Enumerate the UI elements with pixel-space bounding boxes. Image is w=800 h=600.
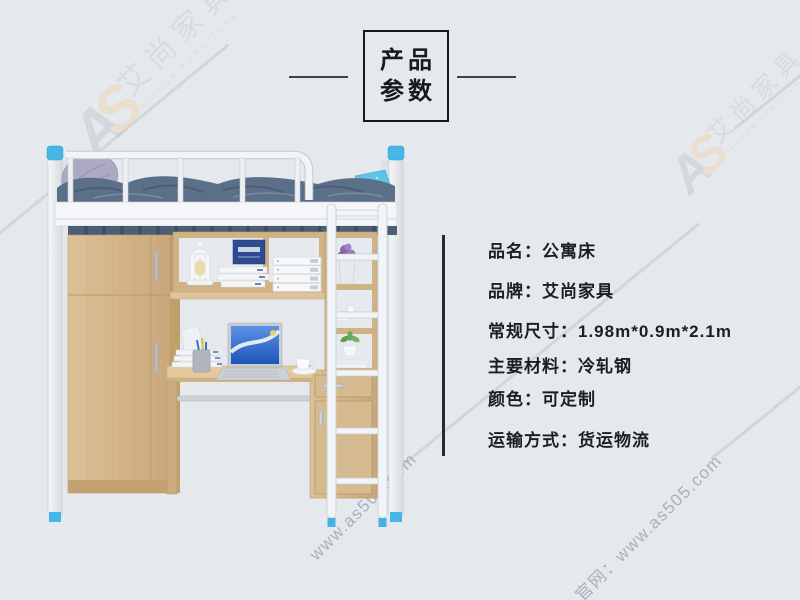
spec-label: 颜色 [488, 390, 524, 409]
spec-value: 可定制 [542, 390, 596, 409]
brand-name-cn: 艾尚家具 [112, 0, 243, 102]
spec-value: 艾尚家具 [542, 282, 614, 301]
spec-label: 品名 [488, 242, 524, 261]
spec-row-color: 颜色：可定制 [488, 385, 596, 410]
spec-colon: ： [560, 322, 578, 341]
spec-label: 运输方式 [488, 431, 560, 450]
promo-canvas: AS 艾尚家具 AIRSUN FURNITURE AS 艾尚家具 AIRSUN … [0, 0, 800, 600]
product-image [33, 140, 418, 550]
brand-name-cn: 艾尚家具 [703, 42, 800, 149]
spec-colon: ： [560, 357, 578, 376]
spec-divider [442, 235, 445, 456]
watermark-slash-bottom-right [710, 383, 800, 460]
spec-row-brand: 品牌：艾尚家具 [488, 277, 614, 302]
brand-name-en: AIRSUN FURNITURE [137, 0, 252, 112]
spec-row-name: 品名：公寓床 [488, 237, 596, 262]
brand-name-en: AIRSUN FURNITURE [723, 63, 800, 157]
spec-colon: ： [524, 390, 542, 409]
spec-colon: ： [560, 431, 578, 450]
spec-label: 常规尺寸 [488, 322, 560, 341]
as-logo-icon: AS [662, 135, 728, 201]
spec-colon: ： [524, 282, 542, 301]
decor-white-books [217, 267, 269, 287]
spec-value: 货运物流 [578, 431, 650, 450]
title-flank-line-left [289, 76, 348, 78]
title-flank-line-right [457, 76, 516, 78]
spec-colon: ： [524, 242, 542, 261]
spec-row-material: 主要材料：冷轧钢 [488, 352, 632, 377]
spec-label: 品牌 [488, 282, 524, 301]
spec-value: 1.98m*0.9m*2.1m [578, 322, 732, 341]
page-title-line-2: 参数 [376, 80, 436, 104]
page-title-line-1: 产品 [376, 49, 436, 73]
watermark-slash-top-right [734, 63, 800, 130]
bed-mattress-bedding [57, 176, 395, 206]
laptop [216, 323, 291, 380]
watermark-site-label: 官网：www.as505.com [568, 447, 726, 600]
spec-row-size: 常规尺寸：1.98m*0.9m*2.1m [488, 317, 732, 342]
watermark-brand-logo-right: AS 艾尚家具 AIRSUN FURNITURE [662, 41, 800, 201]
wardrobe [68, 235, 180, 493]
spec-label: 主要材料 [488, 357, 560, 376]
decor-blue-box [233, 240, 265, 264]
spec-row-shipping: 运输方式：货运物流 [488, 426, 650, 451]
desk [167, 366, 313, 494]
title-box: 产品 参数 [363, 30, 449, 122]
spec-value: 冷轧钢 [578, 357, 632, 376]
spec-value: 公寓床 [542, 242, 596, 261]
